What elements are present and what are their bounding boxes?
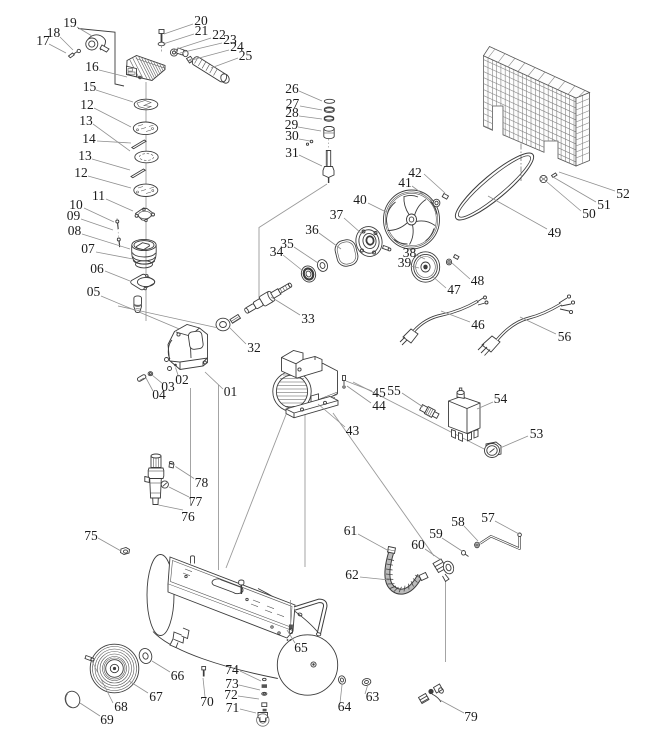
svg-text:07: 07	[81, 241, 95, 256]
svg-text:13: 13	[79, 113, 93, 128]
svg-text:15: 15	[83, 79, 97, 94]
svg-text:61: 61	[344, 523, 358, 538]
svg-text:74: 74	[225, 662, 239, 677]
svg-text:71: 71	[226, 700, 240, 715]
svg-text:12: 12	[74, 165, 88, 180]
svg-text:77: 77	[189, 494, 203, 509]
svg-text:73: 73	[225, 676, 239, 691]
svg-text:51: 51	[597, 197, 611, 212]
svg-text:33: 33	[301, 311, 315, 326]
svg-text:11: 11	[92, 188, 105, 203]
svg-text:79: 79	[464, 709, 478, 724]
svg-text:63: 63	[366, 689, 380, 704]
svg-text:18: 18	[47, 25, 61, 40]
svg-text:43: 43	[346, 423, 360, 438]
svg-text:44: 44	[372, 398, 386, 413]
svg-text:42: 42	[408, 165, 422, 180]
svg-text:39: 39	[398, 255, 412, 270]
svg-text:19: 19	[63, 15, 77, 30]
svg-text:59: 59	[429, 526, 443, 541]
svg-text:56: 56	[558, 329, 572, 344]
svg-text:57: 57	[481, 510, 495, 525]
svg-text:09: 09	[67, 208, 81, 223]
svg-text:68: 68	[114, 699, 128, 714]
svg-text:76: 76	[181, 509, 195, 524]
svg-text:08: 08	[68, 223, 82, 238]
svg-text:46: 46	[471, 317, 485, 332]
svg-text:70: 70	[200, 694, 214, 709]
svg-text:06: 06	[90, 261, 104, 276]
svg-text:78: 78	[195, 475, 209, 490]
svg-text:65: 65	[294, 640, 308, 655]
svg-text:47: 47	[447, 282, 461, 297]
svg-text:26: 26	[285, 81, 299, 96]
svg-text:53: 53	[530, 426, 544, 441]
svg-text:32: 32	[247, 340, 261, 355]
svg-text:50: 50	[582, 206, 596, 221]
svg-text:04: 04	[152, 387, 166, 402]
svg-text:36: 36	[305, 222, 319, 237]
svg-text:48: 48	[471, 273, 485, 288]
svg-text:62: 62	[345, 567, 359, 582]
svg-text:21: 21	[195, 23, 209, 38]
svg-text:31: 31	[285, 145, 299, 160]
svg-text:01: 01	[224, 384, 238, 399]
svg-text:49: 49	[548, 225, 562, 240]
svg-text:05: 05	[87, 284, 101, 299]
svg-text:37: 37	[330, 207, 344, 222]
svg-text:66: 66	[171, 668, 185, 683]
svg-text:45: 45	[372, 385, 386, 400]
svg-text:13: 13	[78, 148, 92, 163]
svg-text:02: 02	[175, 372, 189, 387]
svg-text:14: 14	[82, 131, 96, 146]
svg-text:64: 64	[338, 699, 352, 714]
svg-text:55: 55	[387, 383, 401, 398]
svg-text:60: 60	[411, 537, 425, 552]
svg-text:30: 30	[285, 128, 299, 143]
svg-text:54: 54	[494, 391, 508, 406]
svg-text:69: 69	[100, 712, 114, 727]
svg-text:16: 16	[85, 59, 99, 74]
svg-text:12: 12	[80, 97, 94, 112]
svg-text:52: 52	[616, 186, 630, 201]
svg-text:75: 75	[84, 528, 98, 543]
svg-text:25: 25	[239, 48, 253, 63]
svg-text:58: 58	[451, 514, 465, 529]
svg-text:35: 35	[280, 236, 294, 251]
svg-text:67: 67	[149, 689, 163, 704]
svg-text:40: 40	[353, 192, 367, 207]
